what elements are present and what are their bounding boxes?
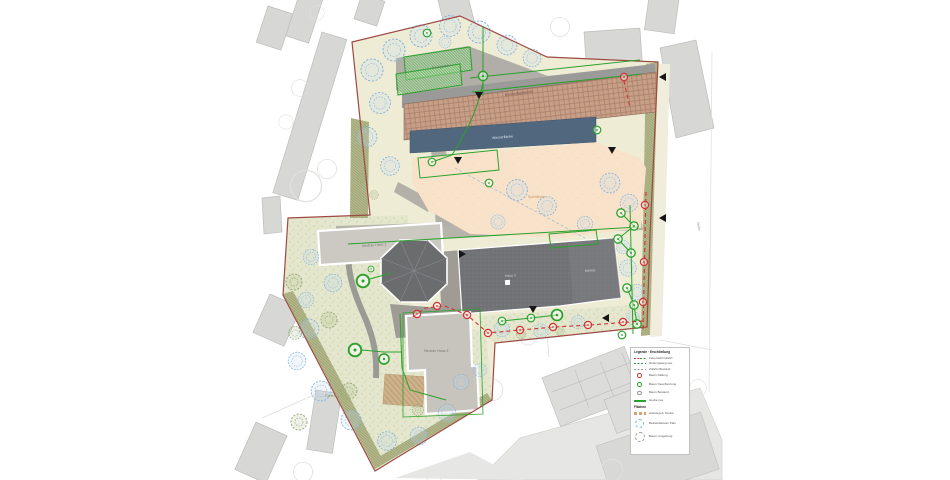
legend-row-fire-access: Feuerwehrzufahrt bbox=[634, 357, 687, 360]
legend-box: Legende · Erschließung Feuerwehrzufahrt … bbox=[630, 347, 690, 455]
site-plan-canvas: Dachgarten Bestandsgebäude Wasserfläche … bbox=[0, 0, 950, 480]
tree-blue-icon bbox=[634, 419, 647, 428]
legend-title: Legende · Erschließung bbox=[634, 351, 687, 354]
legend-row-tree-new: Baum Neupflanzung bbox=[634, 382, 687, 387]
legend-row-rescue-route: Rettungsweg neu bbox=[634, 362, 687, 365]
label-house3: Neubau Haus 3 bbox=[424, 349, 448, 353]
dash-redgreen-swatch bbox=[634, 358, 647, 359]
label-mensa: Mensa bbox=[585, 268, 596, 273]
label-street: Straße bbox=[696, 221, 702, 231]
line-green-swatch bbox=[634, 400, 647, 402]
legend-row-tree-gray: Baum Umgebung bbox=[634, 432, 687, 442]
dash-tan-swatch bbox=[634, 412, 647, 415]
legend-row-surface: wassergeb. Decke bbox=[634, 412, 687, 415]
legend-row-tree-blue: Bestandsbaum Plan bbox=[634, 419, 687, 428]
dash-green-swatch bbox=[634, 363, 647, 364]
legend-row-existing-access: Zufahrt Bestand bbox=[634, 368, 687, 371]
sand-play-patch bbox=[383, 374, 425, 407]
ring-green-icon bbox=[634, 382, 647, 387]
label-play-area: Spielfläche bbox=[528, 195, 545, 199]
tree-gray-icon bbox=[634, 432, 647, 442]
legend-row-hedge: Hecke neu bbox=[634, 399, 687, 402]
dash-gray-swatch bbox=[634, 369, 647, 370]
label-house2: Haus 2 bbox=[505, 273, 516, 278]
ring-red-icon bbox=[634, 373, 647, 378]
site-plan-drawing: Dachgarten Bestandsgebäude Wasserfläche … bbox=[0, 0, 950, 480]
label-garden: Garten bbox=[325, 394, 336, 398]
legend-row-tree-existing: Baum Bestand bbox=[634, 391, 687, 396]
ring-gray-icon bbox=[634, 391, 647, 396]
octagon-pavilion bbox=[381, 240, 447, 302]
legend-section2-title: Flächen bbox=[634, 406, 687, 409]
legend-row-tree-removal: Baum Fällung bbox=[634, 373, 687, 378]
